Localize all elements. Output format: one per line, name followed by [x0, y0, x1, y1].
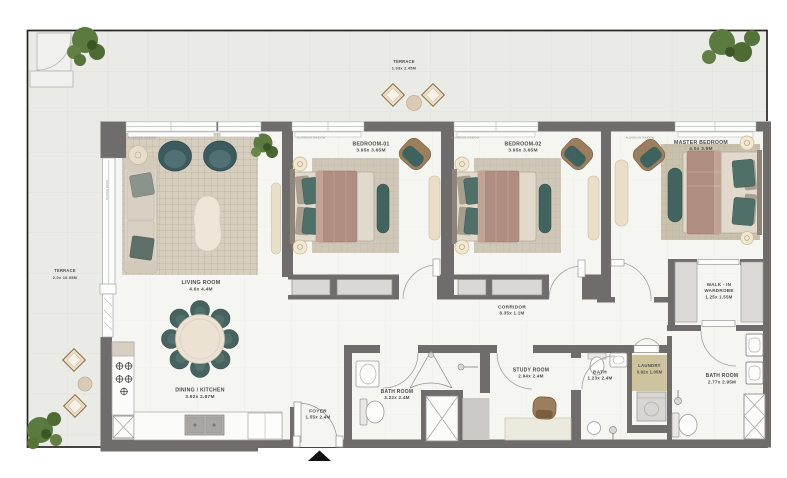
svg-text:ALUMINIUM WINDOW: ALUMINIUM WINDOW — [297, 136, 326, 140]
svg-text:ALUMINIUM WINDOW: ALUMINIUM WINDOW — [626, 136, 655, 140]
svg-text:DINING / KITCHEN: DINING / KITCHEN — [175, 388, 225, 394]
svg-text:BEDROOM-01: BEDROOM-01 — [352, 142, 389, 148]
svg-text:LIVING ROOM: LIVING ROOM — [182, 280, 221, 286]
svg-text:1.93x 2.45M: 1.93x 2.45M — [392, 66, 416, 71]
svg-text:3.92x 2.87M: 3.92x 2.87M — [185, 394, 214, 400]
svg-text:1.55x 2.4M: 1.55x 2.4M — [305, 415, 330, 420]
svg-text:BATH ROOM: BATH ROOM — [706, 373, 739, 379]
svg-text:4.0x 3.9M: 4.0x 3.9M — [689, 146, 713, 152]
svg-text:0.92x 1.05M: 0.92x 1.05M — [637, 370, 663, 375]
svg-text:LAUNDRY: LAUNDRY — [638, 363, 661, 368]
svg-text:8.35x 1.1M: 8.35x 1.1M — [499, 311, 524, 316]
svg-text:ALUMINIUM WINDOW: ALUMINIUM WINDOW — [451, 136, 480, 140]
svg-text:WARDROBE: WARDROBE — [704, 288, 733, 293]
svg-text:MASTER BEDROOM: MASTER BEDROOM — [674, 140, 728, 146]
svg-text:2.77x 2.95M: 2.77x 2.95M — [708, 380, 736, 385]
svg-text:WALK - IN: WALK - IN — [707, 282, 732, 287]
svg-text:1.23x 2.4M: 1.23x 2.4M — [587, 376, 612, 381]
svg-text:ALUMINIUM WINDOW: ALUMINIUM WINDOW — [128, 136, 157, 140]
svg-text:SLIDING DOOR: SLIDING DOOR — [105, 180, 109, 200]
svg-text:TERRACE: TERRACE — [54, 268, 76, 273]
svg-text:2.94x 2.4M: 2.94x 2.4M — [518, 374, 544, 379]
svg-text:1.25x 1.55M: 1.25x 1.55M — [705, 295, 732, 300]
svg-text:2.0x 10.95M: 2.0x 10.95M — [53, 275, 77, 280]
svg-text:4.6x 4.4M: 4.6x 4.4M — [189, 287, 213, 293]
svg-text:TERRACE: TERRACE — [393, 59, 415, 64]
svg-text:3.95x 3.65M: 3.95x 3.65M — [356, 148, 385, 154]
svg-text:3.22x 2.4M: 3.22x 2.4M — [384, 395, 410, 400]
svg-text:BEDROOM-02: BEDROOM-02 — [504, 142, 541, 148]
svg-text:3.95x 3.65M: 3.95x 3.65M — [508, 148, 537, 154]
